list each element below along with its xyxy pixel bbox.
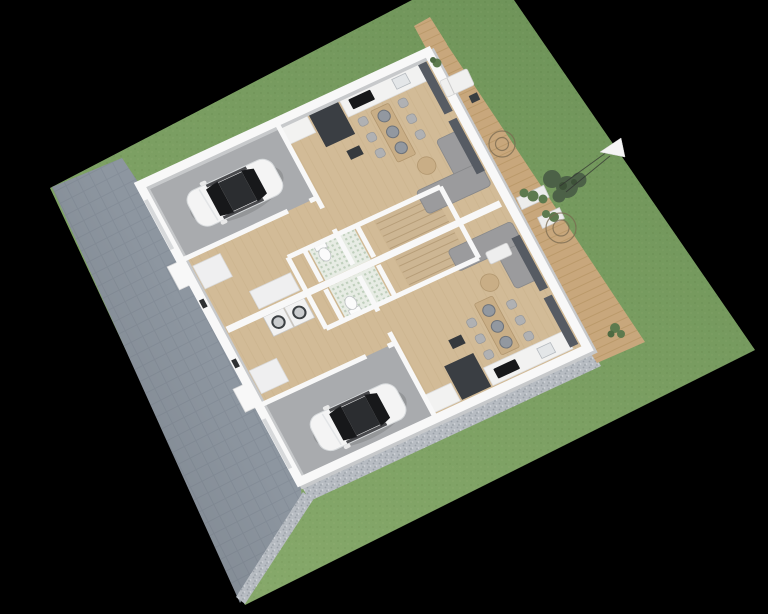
plant xyxy=(542,210,550,218)
plant xyxy=(520,189,529,198)
plant xyxy=(430,57,436,63)
floor-plan-render xyxy=(0,0,768,614)
plant xyxy=(608,331,615,338)
shrub xyxy=(553,190,566,203)
plant xyxy=(528,191,539,202)
plant xyxy=(539,195,548,204)
plant xyxy=(617,330,625,338)
